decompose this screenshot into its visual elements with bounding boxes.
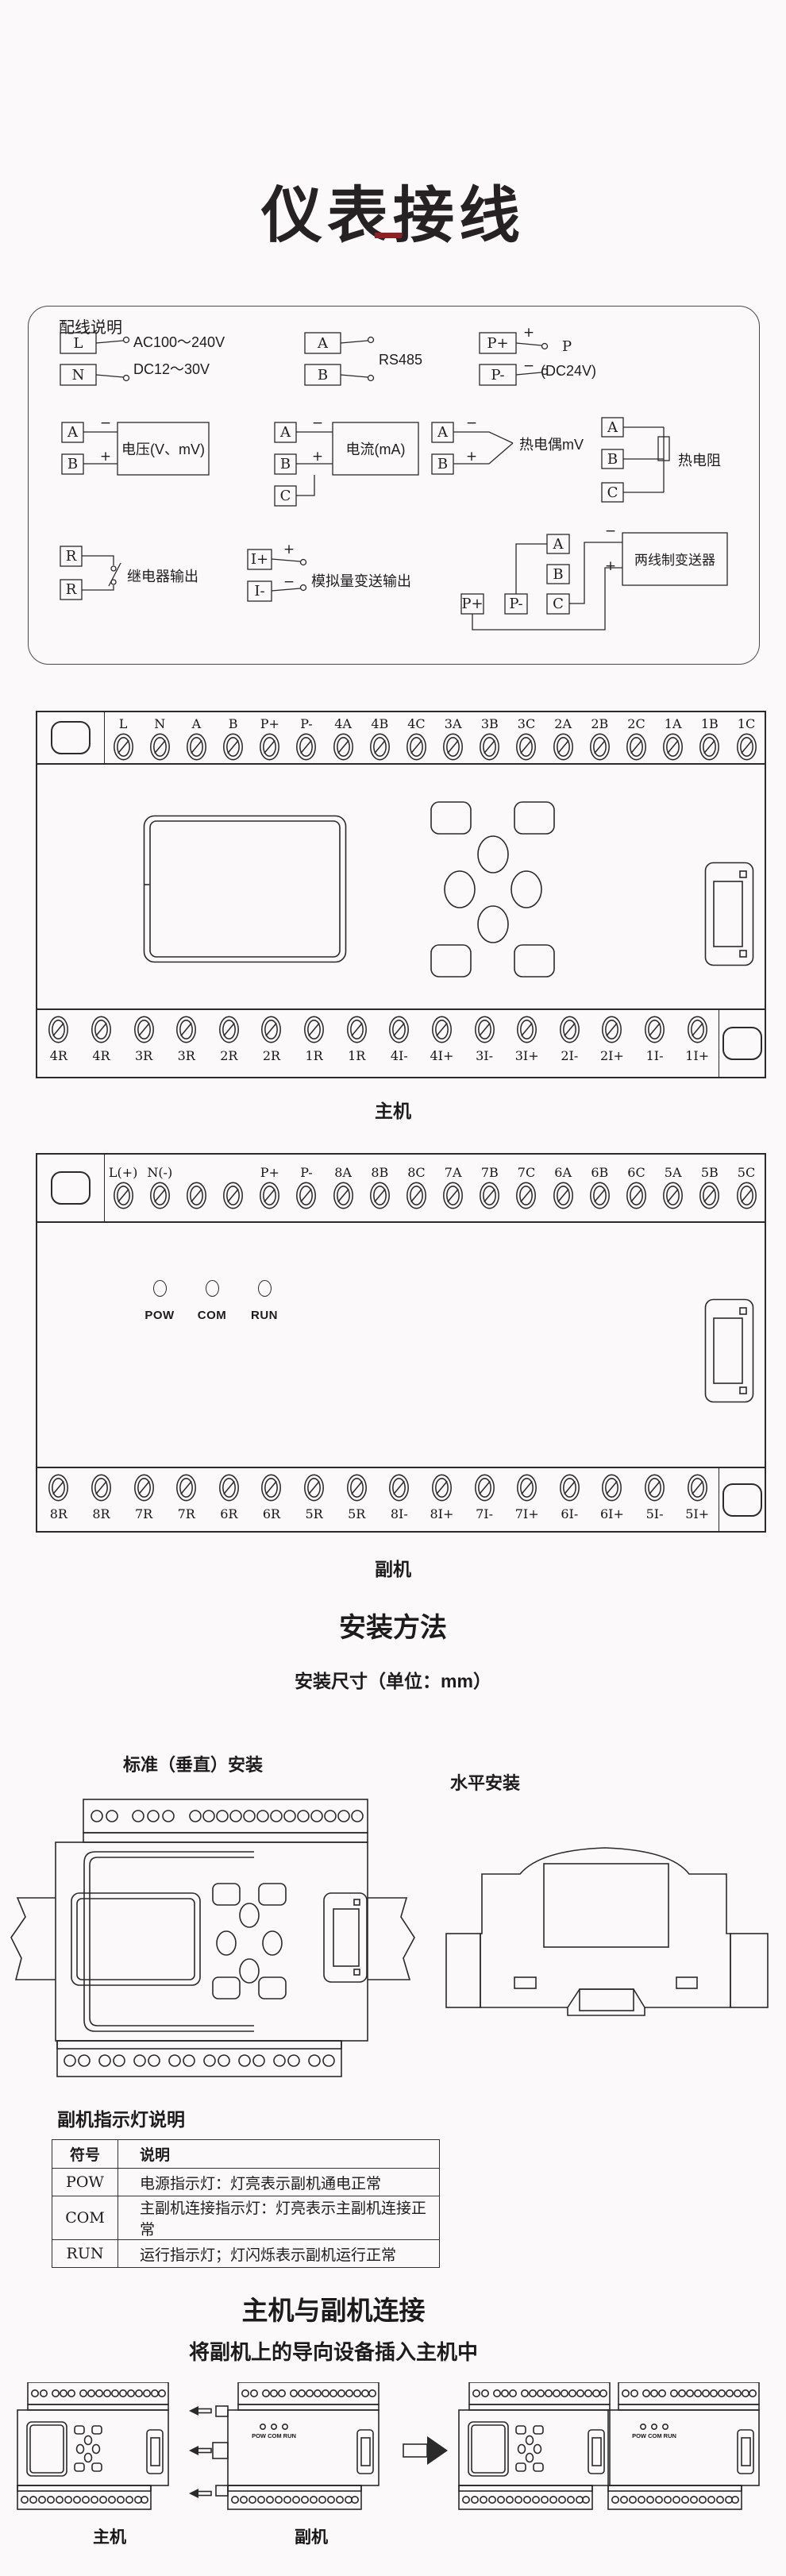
wiring-rs485: A B RS485 <box>305 333 422 385</box>
din-rail-left <box>11 1898 56 1980</box>
terminal-2A: 2A <box>545 712 581 763</box>
screw-icon <box>687 1015 708 1044</box>
svg-text:+: + <box>466 449 477 465</box>
svg-text:电压(V、mV): 电压(V、mV) <box>121 442 205 457</box>
terminal-5I-: 5I- <box>634 1468 676 1531</box>
mini-led-labels: POW COM RUN <box>632 2432 676 2439</box>
terminal-label: 8R <box>50 1506 67 1521</box>
terminal-4C: 4C <box>398 712 434 763</box>
terminal-label: 5R <box>305 1506 322 1521</box>
screw-icon <box>186 732 207 762</box>
terminal-label: P+ <box>260 1165 279 1180</box>
screw-icon <box>346 1015 368 1044</box>
terminal-blank <box>178 1155 214 1221</box>
terminal-1A: 1A <box>655 712 692 763</box>
terminal-label: A <box>192 716 202 731</box>
terminal-label: 4I+ <box>430 1048 453 1063</box>
terminal-7I+: 7I+ <box>506 1468 549 1531</box>
terminal-7I-: 7I- <box>463 1468 506 1531</box>
din-clip-cutout <box>719 1010 765 1077</box>
terminal-8I-: 8I- <box>378 1468 421 1531</box>
terminal-2R: 2R <box>208 1010 251 1077</box>
screw-icon <box>406 1181 427 1210</box>
terminal-label: N <box>154 716 165 731</box>
terminal-label: 8B <box>371 1165 388 1180</box>
terminal-label: 2A <box>554 716 572 731</box>
screw-icon <box>406 732 427 762</box>
table-row: COM 主副机连接指示灯：灯亮表示主副机连接正常 <box>52 2196 440 2240</box>
din-clip-cutout <box>37 1155 105 1221</box>
terminal-label: 7C <box>518 1165 535 1180</box>
terminal-5B: 5B <box>692 1155 728 1221</box>
svg-text:热电偶mV: 热电偶mV <box>519 437 584 453</box>
led-indicator-icon <box>258 1280 272 1297</box>
screw-icon <box>626 1181 647 1210</box>
wiring-legend-box: 配线说明 L N AC100～240V DC12～30V A B RS485 <box>28 306 760 665</box>
terminal-4R: 4R <box>37 1010 80 1077</box>
screw-icon <box>149 732 171 762</box>
install-heading: 安装方法 <box>0 1606 786 1645</box>
terminal-7R: 7R <box>122 1468 165 1531</box>
terminal-label: 2I- <box>561 1048 578 1063</box>
screw-icon <box>559 1015 580 1044</box>
svg-text:B: B <box>280 456 291 472</box>
screw-icon <box>175 1015 197 1044</box>
svg-text:A: A <box>67 424 79 441</box>
svg-text:热电阻: 热电阻 <box>678 453 721 469</box>
terminal-4A: 4A <box>325 712 361 763</box>
sub-unit-frame: L(+)N(-)P+P-8A8B8C7A7B7C6A6B6C5A5B5C POW… <box>36 1153 766 1533</box>
svg-text:+: + <box>283 542 295 557</box>
screw-icon <box>515 732 537 762</box>
terminal-6R: 6R <box>208 1468 251 1531</box>
svg-text:AC100～240V: AC100～240V <box>133 334 225 350</box>
wiring-voltage-input: A B − + 电压(V、mV) <box>62 415 209 475</box>
wiring-legend-diagram: L N AC100～240V DC12～30V A B RS485 P+ P- … <box>29 307 759 664</box>
terminal-4I-: 4I- <box>378 1010 421 1077</box>
screw-icon <box>260 1015 282 1044</box>
led-description-table: 符号 说明 POW 电源指示灯：灯亮表示副机通电正常 COM 主副机连接指示灯：… <box>52 2139 440 2268</box>
terminal-4I+: 4I+ <box>421 1010 464 1077</box>
svg-text:−: − <box>523 358 534 374</box>
svg-text:P+: P+ <box>461 596 483 612</box>
terminal-6R: 6R <box>250 1468 293 1531</box>
terminal-6A: 6A <box>545 1155 581 1221</box>
terminal-label: 4R <box>92 1048 110 1063</box>
svg-text:A: A <box>437 424 449 441</box>
svg-text:B: B <box>437 456 448 472</box>
terminal-label: 1B <box>701 716 719 731</box>
terminal-3R: 3R <box>165 1010 208 1077</box>
screw-icon <box>369 732 391 762</box>
terminal-7B: 7B <box>472 1155 508 1221</box>
terminal-label: P- <box>300 716 312 731</box>
terminal-7R: 7R <box>165 1468 208 1531</box>
terminal-label: 5A <box>665 1165 682 1180</box>
col-description: 说明 <box>118 2140 440 2169</box>
screw-icon <box>662 732 684 762</box>
terminal-label: 4C <box>407 716 425 731</box>
led-pow: POW <box>139 1280 180 1322</box>
screw-icon <box>369 1181 391 1210</box>
svg-text:B: B <box>607 451 618 468</box>
terminal-label: 6B <box>591 1165 608 1180</box>
sub-unit-bottom-strip: 8R8R7R7R6R6R5R5R8I-8I+7I-7I+6I-6I+5I-5I+ <box>37 1467 765 1531</box>
terminal-label: 1I+ <box>685 1048 709 1063</box>
terminal-P-: P- <box>288 712 325 763</box>
terminal-label: 8I- <box>391 1506 408 1521</box>
wiring-power-in: L N AC100～240V DC12～30V <box>60 333 225 385</box>
molding-seam <box>84 1852 254 2031</box>
terminal-label: 2C <box>627 716 645 731</box>
terminal-label: 2I+ <box>600 1048 624 1063</box>
screw-icon <box>303 1015 325 1044</box>
sub-unit-bottom-terminals: 8R8R7R7R6R6R5R5R8I-8I+7I-7I+6I-6I+5I-5I+ <box>37 1468 719 1531</box>
svg-text:+: + <box>523 325 534 341</box>
terminal-6I+: 6I+ <box>591 1468 634 1531</box>
screw-icon <box>479 1181 500 1210</box>
svg-text:−: − <box>312 415 323 431</box>
connection-main-caption: 主机 <box>93 2527 126 2547</box>
screw-icon <box>388 1015 410 1044</box>
screw-icon <box>113 732 134 762</box>
svg-text:−: − <box>100 415 111 431</box>
terminal-label: 8A <box>334 1165 352 1180</box>
terminal-5R: 5R <box>293 1468 336 1531</box>
terminal-label: 3R <box>135 1048 152 1063</box>
screw-icon <box>295 732 317 762</box>
terminal-2C: 2C <box>618 712 654 763</box>
terminal-5A: 5A <box>655 1155 692 1221</box>
terminal-label: 7A <box>445 1165 462 1180</box>
led-indicator-icon <box>206 1280 219 1297</box>
main-unit-body <box>37 765 765 1008</box>
svg-text:电流(mA): 电流(mA) <box>346 442 406 457</box>
led-label: POW <box>144 1309 174 1322</box>
screw-icon <box>346 1473 368 1502</box>
screw-icon <box>662 1181 684 1210</box>
screw-icon <box>626 732 647 762</box>
terminal-label: 3C <box>518 716 535 731</box>
terminal-label: 1I- <box>646 1048 664 1063</box>
svg-text:N: N <box>72 367 85 384</box>
svg-text:C: C <box>553 596 564 612</box>
terminal-label: 6R <box>220 1506 237 1521</box>
terminal-label: 3R <box>178 1048 195 1063</box>
terminal-1R: 1R <box>335 1010 378 1077</box>
screw-icon <box>218 1015 240 1044</box>
terminal-1I+: 1I+ <box>676 1010 719 1077</box>
led-com: COM <box>191 1280 233 1322</box>
expansion-connector <box>704 862 757 966</box>
terminal-7C: 7C <box>508 1155 545 1221</box>
terminal-6B: 6B <box>581 1155 618 1221</box>
led-table-heading: 副机指示灯说明 <box>57 2104 185 2131</box>
svg-text:−: − <box>283 574 295 590</box>
terminal-8C: 8C <box>398 1155 434 1221</box>
svg-text:P+: P+ <box>487 335 508 352</box>
main-unit-caption: 主机 <box>0 1096 786 1123</box>
status-led-row: POW COM RUN <box>139 1280 285 1322</box>
terminal-N(-): N(-) <box>141 1155 178 1221</box>
svg-text:I-: I- <box>254 583 264 600</box>
terminal-label: 3I+ <box>515 1048 539 1063</box>
svg-text:+: + <box>100 449 111 465</box>
screw-icon <box>295 1181 317 1210</box>
wiring-relay-output: R R 继电器输出 <box>60 546 198 600</box>
svg-text:模拟量变送输出: 模拟量变送输出 <box>311 573 411 589</box>
terminal-label: 5I- <box>646 1506 664 1521</box>
screw-icon <box>333 1181 354 1210</box>
svg-text:DC12～30V: DC12～30V <box>133 361 210 377</box>
terminal-1B: 1B <box>692 712 728 763</box>
terminal-label: 7B <box>481 1165 499 1180</box>
terminal-label: 3B <box>481 716 499 731</box>
table-row: RUN 运行指示灯；灯闪烁表示副机运行正常 <box>52 2240 440 2268</box>
terminal-label: 3A <box>445 716 462 731</box>
terminal-L(+): L(+) <box>105 1155 141 1221</box>
terminal-label: 8I+ <box>430 1506 453 1521</box>
terminal-8R: 8R <box>80 1468 123 1531</box>
main-unit-top-strip: LNABP+P-4A4B4C3A3B3C2A2B2C1A1B1C <box>37 712 765 765</box>
svg-text:A: A <box>279 424 291 441</box>
terminal-label: N(-) <box>147 1165 172 1180</box>
screw-icon <box>113 1181 134 1210</box>
screw-icon <box>553 1181 574 1210</box>
terminal-8R: 8R <box>37 1468 80 1531</box>
vertical-install-drawing <box>0 1796 445 2082</box>
terminal-P-: P- <box>288 1155 325 1221</box>
display-window <box>143 815 347 963</box>
terminal-label: 6I+ <box>600 1506 624 1521</box>
terminal-label: 4I- <box>391 1048 408 1063</box>
terminal-P+: P+ <box>252 1155 288 1221</box>
connection-heading: 主机与副机连接 <box>0 2289 667 2327</box>
terminal-label: 6I- <box>561 1506 578 1521</box>
terminal-5I+: 5I+ <box>676 1468 719 1531</box>
wiring-power-out: P+ P- + − P (DC24V) <box>480 325 596 385</box>
connection-subheading: 将副机上的导向设备插入主机中 <box>0 2336 667 2366</box>
terminal-label: 6A <box>554 1165 572 1180</box>
svg-text:+: + <box>605 558 616 574</box>
svg-text:C: C <box>280 488 291 504</box>
svg-text:R: R <box>66 548 77 565</box>
screw-icon <box>186 1181 207 1210</box>
svg-text:(DC24V): (DC24V) <box>541 363 596 379</box>
svg-text:R: R <box>66 581 77 598</box>
screw-icon <box>259 1181 280 1210</box>
terminal-label: 5B <box>701 1165 719 1180</box>
terminal-3I+: 3I+ <box>506 1010 549 1077</box>
screw-icon <box>516 1015 537 1044</box>
terminal-label: 3I- <box>476 1048 493 1063</box>
expansion-connector <box>704 1298 757 1403</box>
main-unit-bottom-terminals: 4R4R3R3R2R2R1R1R4I-4I+3I-3I+2I-2I+1I-1I+ <box>37 1010 719 1077</box>
terminal-7A: 7A <box>435 1155 472 1221</box>
terminal-label: 2B <box>591 716 608 731</box>
terminal-1I-: 1I- <box>634 1010 676 1077</box>
screw-icon <box>222 732 244 762</box>
mini-led-labels: POW COM RUN <box>252 2432 296 2439</box>
svg-text:A: A <box>553 536 564 553</box>
manual-page: 仪表接线 配线说明 L N AC100～240V DC12～30V A B RS… <box>0 0 786 2576</box>
svg-text:A: A <box>317 335 329 352</box>
screw-icon <box>479 732 500 762</box>
screw-icon <box>431 1473 453 1502</box>
terminal-1R: 1R <box>293 1010 336 1077</box>
horizontal-install-label: 水平安装 <box>450 1769 520 1795</box>
screw-icon <box>431 1015 453 1044</box>
col-symbol: 符号 <box>52 2140 118 2169</box>
terminal-label: 6R <box>263 1506 280 1521</box>
svg-text:B: B <box>553 566 563 583</box>
svg-text:I+: I+ <box>251 551 268 568</box>
led-label: RUN <box>251 1309 278 1322</box>
screw-icon <box>736 732 757 762</box>
terminal-A: A <box>178 712 214 763</box>
svg-text:+: + <box>312 449 323 465</box>
keypad-cluster <box>430 800 596 978</box>
screw-icon <box>91 1473 112 1502</box>
terminal-8B: 8B <box>361 1155 398 1221</box>
terminal-3C: 3C <box>508 712 545 763</box>
svg-text:L: L <box>74 335 83 352</box>
screw-icon <box>553 732 574 762</box>
terminal-2B: 2B <box>581 712 618 763</box>
terminal-3B: 3B <box>472 712 508 763</box>
title-underline-dash <box>375 233 402 238</box>
wiring-two-wire-transmitter: P+ P- A B C 两线制变送器 − + <box>461 523 727 630</box>
terminal-blank <box>215 1155 252 1221</box>
wiring-rtd: A B C 热电阻 <box>602 418 721 502</box>
sub-unit-top-terminals: L(+)N(-)P+P-8A8B8C7A7B7C6A6B6C5A5B5C <box>105 1155 765 1221</box>
svg-text:−: − <box>466 415 477 431</box>
din-clip-cutout <box>719 1468 765 1531</box>
terminal-N: N <box>141 712 178 763</box>
screw-icon <box>222 1181 244 1210</box>
terminal-B: B <box>215 712 252 763</box>
terminal-label: 4B <box>371 716 388 731</box>
terminal-label: 7R <box>135 1506 152 1521</box>
screw-icon <box>91 1015 112 1044</box>
screw-icon <box>559 1473 580 1502</box>
terminal-label: 8C <box>407 1165 425 1180</box>
svg-text:−: − <box>605 523 616 539</box>
terminal-label: 5C <box>738 1165 755 1180</box>
screw-icon <box>589 1181 611 1210</box>
sub-unit-caption: 副机 <box>0 1554 786 1581</box>
terminal-1C: 1C <box>728 712 765 763</box>
top-screws-row <box>91 1811 363 1822</box>
screw-icon <box>601 1015 622 1044</box>
terminal-label: B <box>229 716 238 731</box>
terminal-label: 7I+ <box>515 1506 539 1521</box>
terminal-label: 4A <box>334 716 352 731</box>
svg-text:A: A <box>607 419 618 436</box>
terminal-8I+: 8I+ <box>421 1468 464 1531</box>
sub-unit-body: POW COM RUN <box>37 1223 765 1467</box>
terminal-label: 5R <box>348 1506 365 1521</box>
terminal-5R: 5R <box>335 1468 378 1531</box>
terminal-label: 4R <box>50 1048 67 1063</box>
terminal-label: 5I+ <box>685 1506 709 1521</box>
terminal-label: 7I- <box>476 1506 493 1521</box>
terminal-L: L <box>105 712 141 763</box>
screw-icon <box>149 1181 171 1210</box>
svg-text:P-: P- <box>491 367 504 384</box>
terminal-label: 1R <box>348 1048 365 1063</box>
din-rail-right <box>368 1898 414 1980</box>
terminal-label: 1C <box>738 716 755 731</box>
terminal-label: P+ <box>260 716 279 731</box>
screw-icon <box>133 1015 155 1044</box>
svg-text:P-: P- <box>509 596 522 612</box>
screw-icon <box>442 1181 464 1210</box>
terminal-6I-: 6I- <box>549 1468 591 1531</box>
led-indicator-icon <box>153 1280 167 1297</box>
terminal-label: 6C <box>627 1165 645 1180</box>
page-title: 仪表接线 <box>0 167 786 255</box>
table-header-row: 符号 说明 <box>52 2140 440 2169</box>
horizontal-install-drawing <box>421 1826 774 2021</box>
led-run: RUN <box>244 1280 285 1322</box>
insert-direction-arrows <box>189 2406 211 2498</box>
terminal-3I-: 3I- <box>463 1010 506 1077</box>
screw-icon <box>699 732 720 762</box>
main-unit-top-terminals: LNABP+P-4A4B4C3A3B3C2A2B2C1A1B1C <box>105 712 765 763</box>
screw-icon <box>175 1473 197 1502</box>
molding-seam <box>90 1857 254 2026</box>
screw-icon <box>333 732 354 762</box>
screw-icon <box>259 732 280 762</box>
screw-icon <box>474 1473 495 1502</box>
screw-icon <box>515 1181 537 1210</box>
terminal-label: 1R <box>305 1048 322 1063</box>
table-row: POW 电源指示灯：灯亮表示副机通电正常 <box>52 2169 440 2196</box>
terminal-label: 1A <box>665 716 682 731</box>
terminal-label: 2R <box>220 1048 237 1063</box>
terminal-label: 2R <box>263 1048 280 1063</box>
screw-icon <box>601 1473 622 1502</box>
vertical-install-label: 标准（垂直）安装 <box>123 1751 263 1776</box>
result-arrow-icon <box>403 2436 448 2465</box>
terminal-3A: 3A <box>435 712 472 763</box>
screw-icon <box>474 1015 495 1044</box>
screw-icon <box>303 1473 325 1502</box>
install-dimension-note: 安装尺寸（单位：mm） <box>0 1666 786 1693</box>
screw-icon <box>260 1473 282 1502</box>
screw-icon <box>589 732 611 762</box>
svg-text:B: B <box>318 367 328 384</box>
screw-icon <box>699 1181 720 1210</box>
terminal-5C: 5C <box>728 1155 765 1221</box>
wiring-analog-output: I+ I- + − 模拟量变送输出 <box>248 542 411 601</box>
screw-icon <box>388 1473 410 1502</box>
terminal-label: P- <box>300 1165 312 1180</box>
screw-icon <box>442 732 464 762</box>
screw-icon <box>687 1473 708 1502</box>
terminal-4B: 4B <box>361 712 398 763</box>
bottom-screws-row <box>64 2055 334 2066</box>
wiring-thermocouple: A B − + 热电偶mV <box>432 415 584 474</box>
terminal-P+: P+ <box>252 712 288 763</box>
guide-tabs <box>213 2406 228 2496</box>
led-label: COM <box>198 1309 227 1322</box>
terminal-2I+: 2I+ <box>591 1010 634 1077</box>
wiring-current-input: A B C − + 电流(mA) <box>275 415 418 506</box>
terminal-label: 8R <box>92 1506 110 1521</box>
screw-icon <box>644 1473 665 1502</box>
